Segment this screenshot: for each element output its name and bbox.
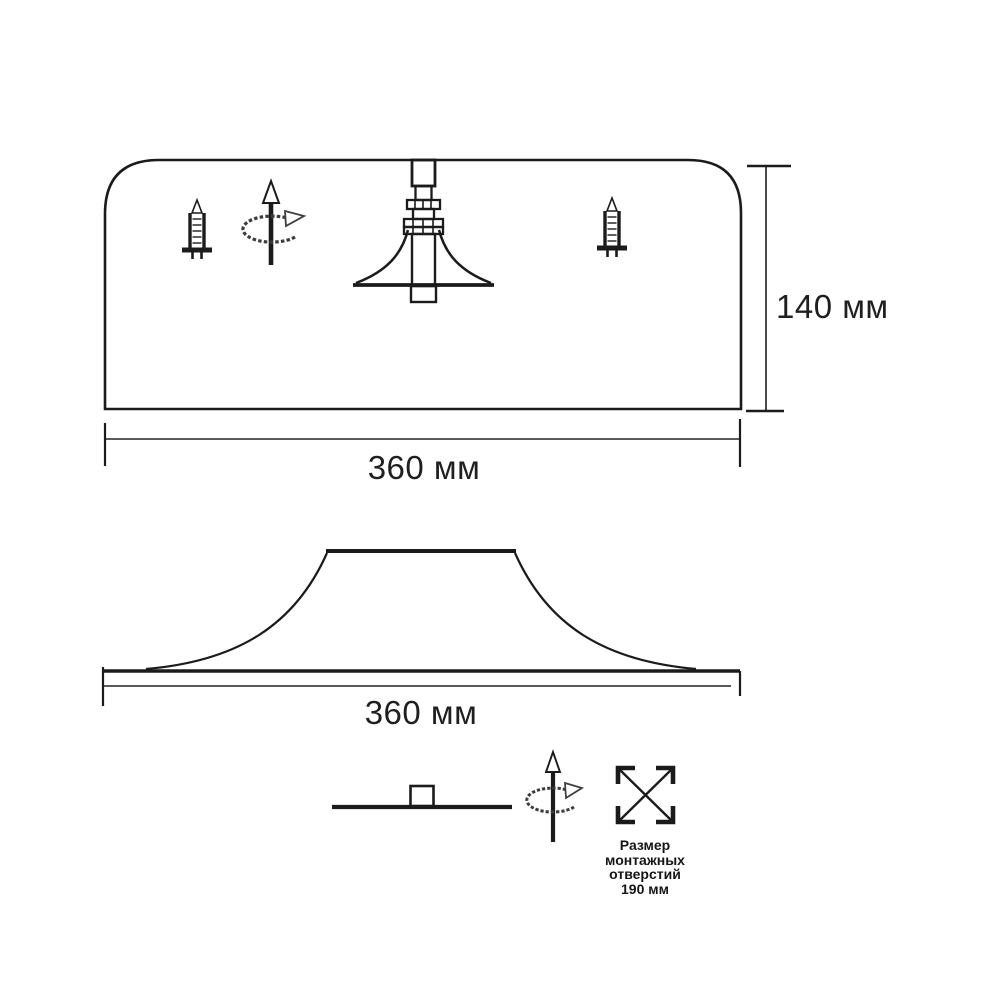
caption-line-1: Размер	[605, 838, 685, 853]
caption-line-3: отверстий	[605, 867, 685, 882]
caption-line-2: монтажных	[605, 853, 685, 868]
mounting-holes-caption: Размер монтажных отверстий 190 мм	[605, 838, 685, 896]
screw-icon-right	[597, 198, 627, 257]
rotation-arrow-icon-bottom	[527, 752, 582, 842]
screw-icon-left	[182, 200, 212, 259]
top-width-dimension-label: 360 мм	[368, 449, 481, 487]
caption-line-4: 190 мм	[605, 882, 685, 897]
flat-lamp-side-icon	[332, 786, 512, 807]
height-dimension-label: 140 мм	[776, 288, 889, 326]
profile-view-outline	[103, 551, 740, 671]
technical-drawing-page: 140 мм 360 мм 360 мм Размер монтажных от…	[0, 0, 1000, 1000]
profile-width-dimension-label: 360 мм	[365, 694, 478, 732]
mounting-holes-icon	[618, 768, 673, 822]
diagram-canvas	[0, 0, 1000, 1000]
ceiling-mount-bracket	[353, 160, 494, 302]
rotation-arrow-icon-top	[243, 181, 304, 265]
